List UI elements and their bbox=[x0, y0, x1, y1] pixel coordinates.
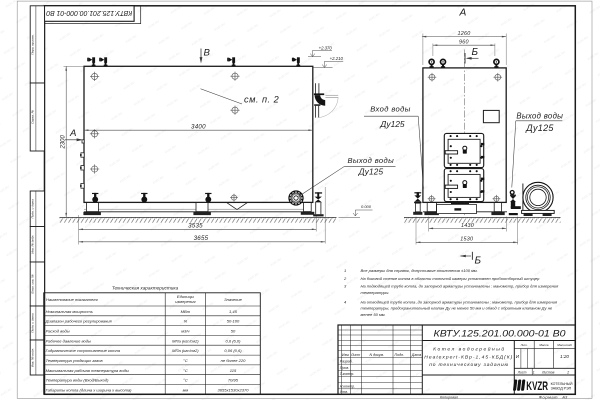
svg-text:измерения: измерения bbox=[175, 299, 196, 304]
svg-text:Дата: Дата bbox=[411, 353, 421, 357]
svg-text:70/95: 70/95 bbox=[228, 378, 239, 383]
svg-text:Подп. и дата: Подп. и дата bbox=[30, 199, 34, 219]
svg-text:А3: А3 bbox=[561, 394, 568, 399]
svg-text:°С: °С bbox=[183, 368, 188, 373]
svg-text:Т.контр.: Т.контр. bbox=[340, 372, 355, 376]
svg-text:м3/ч: м3/ч bbox=[181, 329, 190, 334]
svg-text:50-100: 50-100 bbox=[227, 319, 240, 324]
svg-text:Значение: Значение bbox=[224, 297, 243, 302]
svg-text:Н.контр.: Н.контр. bbox=[340, 385, 355, 389]
svg-text:В: В bbox=[204, 48, 211, 59]
svg-text:115: 115 bbox=[230, 368, 237, 373]
svg-text:2: 2 bbox=[566, 371, 569, 375]
svg-text:N докум.: N докум. bbox=[370, 353, 385, 357]
svg-text:1260: 1260 bbox=[458, 31, 471, 37]
svg-text:Формат: Формат bbox=[539, 394, 558, 399]
svg-text:мм: мм bbox=[183, 387, 189, 392]
svg-text:Температура уходящих газов: Температура уходящих газов bbox=[46, 358, 103, 363]
svg-text:Утв.: Утв. bbox=[340, 390, 348, 394]
svg-text:Вход воды: Вход воды bbox=[370, 105, 410, 114]
svg-text:На боковой стенке котла в обла: На боковой стенке котла в области топочн… bbox=[361, 276, 541, 281]
svg-text:Техническая характеристика: Техническая характеристика bbox=[112, 286, 179, 291]
svg-text:3400: 3400 bbox=[191, 124, 206, 131]
svg-text:3655х1530х2370: 3655х1530х2370 bbox=[217, 387, 249, 392]
svg-text:Диапазон рабочего регулировани: Диапазон рабочего регулирования bbox=[45, 319, 113, 324]
svg-text:+2.370: +2.370 bbox=[319, 45, 333, 50]
svg-text:Наименование показателя: Наименование показателя bbox=[46, 297, 98, 302]
svg-text:КВТУ.125.201.00.000-01 В0: КВТУ.125.201.00.000-01 В0 bbox=[434, 327, 567, 338]
svg-text:0,06 (0,6): 0,06 (0,6) bbox=[224, 348, 242, 353]
svg-text:Изм.: Изм. bbox=[342, 353, 350, 357]
svg-text:1430: 1430 bbox=[461, 223, 474, 229]
svg-text:1530: 1530 bbox=[460, 237, 473, 243]
svg-text:3535: 3535 bbox=[188, 223, 203, 230]
svg-text:Лист: Лист bbox=[517, 371, 527, 375]
svg-text:Масса: Масса bbox=[539, 343, 548, 347]
svg-text:°С: °С bbox=[183, 358, 188, 363]
svg-text:Листов: Листов bbox=[541, 371, 555, 375]
svg-text:температуры, предохранительный: температуры, предохранительный клапан Ду… bbox=[361, 306, 553, 311]
svg-text:Все размеры для справок, допус: Все размеры для справок, допустимые откл… bbox=[361, 268, 478, 273]
svg-text:%: % bbox=[184, 319, 188, 324]
svg-text:0.000: 0.000 bbox=[361, 204, 372, 209]
svg-text:Расход воды: Расход воды bbox=[46, 329, 70, 334]
svg-text:Инв. № подл.: Инв. № подл. bbox=[30, 348, 34, 367]
svg-text:Ду125: Ду125 bbox=[358, 168, 384, 177]
svg-text:менее 50 мм.: менее 50 мм. bbox=[361, 312, 386, 317]
svg-text:На подводящей трубе котла, до: На подводящей трубе котла, до запорной а… bbox=[361, 284, 560, 289]
svg-text:Выход воды: Выход воды bbox=[347, 156, 394, 165]
svg-text:МВт: МВт bbox=[181, 309, 191, 314]
svg-text:Подп. и дата: Подп. и дата bbox=[30, 313, 34, 333]
svg-text:Инв. № дубл.: Инв. № дубл. bbox=[30, 235, 34, 254]
svg-text:1:20: 1:20 bbox=[560, 354, 569, 359]
svg-text:Копировал: Копировал bbox=[440, 395, 458, 399]
svg-text:Пров.: Пров. bbox=[340, 366, 349, 370]
svg-text:МПа (кгс/см2): МПа (кгс/см2) bbox=[172, 338, 199, 343]
svg-text:ЗАВОД РЭП: ЗАВОД РЭП bbox=[551, 385, 572, 390]
svg-text:Температура воды (Вход/Выход): Температура воды (Вход/Выход) bbox=[46, 378, 109, 383]
svg-text:0,6 (6,0): 0,6 (6,0) bbox=[225, 338, 241, 343]
svg-text:см. п. 2: см. п. 2 bbox=[244, 95, 279, 105]
svg-text:Лист: Лист bbox=[350, 353, 360, 357]
svg-text:Heatexpert-КВр-1,45-КБД(К): Heatexpert-КВр-1,45-КБД(К) bbox=[424, 354, 512, 360]
svg-text:Выход воды: Выход воды bbox=[516, 112, 563, 121]
svg-text:Котел водогрейный: Котел водогрейный bbox=[433, 346, 504, 353]
svg-text:На отводящей трубе котла ,до з: На отводящей трубе котла ,до запорной ар… bbox=[361, 299, 558, 304]
svg-text:1: 1 bbox=[533, 371, 535, 375]
svg-text:Справ. №: Справ. № bbox=[30, 109, 34, 124]
svg-text:по техническому заданию: по техническому заданию bbox=[429, 362, 508, 368]
svg-text:°С: °С bbox=[183, 378, 188, 383]
svg-text:1,45: 1,45 bbox=[229, 309, 238, 314]
svg-text:Рабочее давление воды: Рабочее давление воды bbox=[46, 338, 91, 343]
svg-text:Б: Б bbox=[472, 47, 479, 58]
svg-text:А: А bbox=[69, 128, 76, 139]
svg-text:не более 220: не более 220 bbox=[221, 358, 246, 363]
svg-text:Лит.: Лит. bbox=[520, 343, 528, 347]
svg-text:960: 960 bbox=[459, 40, 469, 46]
svg-text:Перв. примен.: Перв. примен. bbox=[30, 34, 34, 55]
svg-text:1: 1 bbox=[344, 268, 346, 273]
svg-text:Гидравлическое сопротивление к: Гидравлическое сопротивление котла bbox=[46, 348, 121, 353]
svg-text:2300: 2300 bbox=[61, 134, 67, 149]
svg-text:Габариты котла (длина х ширина: Габариты котла (длина х ширина х высота) bbox=[46, 387, 133, 392]
svg-text:Масштаб: Масштаб bbox=[557, 343, 572, 347]
svg-text:МПа (кгс/см2): МПа (кгс/см2) bbox=[172, 348, 199, 353]
svg-text:Подп.: Подп. bbox=[395, 353, 405, 357]
svg-text:Взам. инв. №: Взам. инв. № bbox=[30, 274, 34, 294]
svg-text:Разраб.: Разраб. bbox=[340, 360, 353, 364]
svg-text:Номинальная мощность: Номинальная мощность bbox=[46, 309, 93, 314]
svg-text:А: А bbox=[459, 8, 467, 19]
svg-text:KVZR: KVZR bbox=[526, 381, 548, 393]
svg-text:3655: 3655 bbox=[194, 235, 209, 242]
svg-text:50: 50 bbox=[231, 329, 236, 334]
svg-text:КВТУ.125.201.00.000-01 В0: КВТУ.125.201.00.000-01 В0 bbox=[46, 9, 132, 16]
svg-text:Максимальная рабочая температу: Максимальная рабочая температура воды bbox=[46, 368, 129, 373]
svg-text:Б: Б bbox=[475, 256, 482, 267]
svg-text:+2.210: +2.210 bbox=[330, 56, 344, 61]
svg-text:температуры.: температуры. bbox=[361, 290, 390, 295]
svg-text:Ду125: Ду125 bbox=[379, 119, 404, 129]
svg-text:Ду125: Ду125 bbox=[525, 123, 554, 133]
